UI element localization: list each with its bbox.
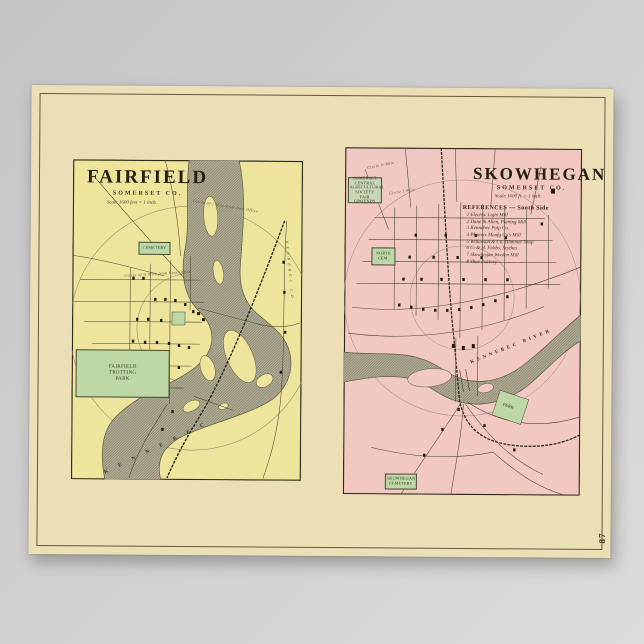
skowhegan-cemetery-label: SKOWHEGAN CEMETERY <box>387 477 415 486</box>
fairfield-county: SOMERSET CO. <box>113 191 182 198</box>
skowhegan-title: SKOWHEGAN <box>473 165 606 184</box>
atlas-poster: FAIRFIELD SOMERSET CO. Scale 1600 feet =… <box>28 85 613 558</box>
fairfield-scale: Scale 1600 feet = 1 inch. <box>107 201 157 207</box>
references-title: REFERENCES — South Side <box>463 205 549 212</box>
cemetery-box: CEMETERY <box>138 242 170 255</box>
skowhegan-county: SOMERSET CO. <box>497 185 566 192</box>
village-park-square <box>172 312 185 325</box>
fair-grounds-box: SOMERSET CENTRAL AGRICULTURAL SOCIETY FA… <box>348 177 382 203</box>
fair-grounds-label: SOMERSET CENTRAL AGRICULTURAL SOCIETY FA… <box>350 176 380 204</box>
trotting-park-box: FAIRFIELD TROTTING PARK <box>75 349 169 398</box>
north-cemetery-box: NORTH CEM. <box>371 247 395 265</box>
page-number: 87 <box>597 532 607 543</box>
fairfield-map-panel: FAIRFIELD SOMERSET CO. Scale 1600 feet =… <box>71 159 303 481</box>
reference-item: 8 Shoe Factory <box>466 260 533 267</box>
skowhegan-cemetery-box: SKOWHEGAN CEMETERY <box>385 473 417 489</box>
skowhegan-map-panel: SKOWHEGAN SOMERSET CO. Scale 1600 ft. = … <box>343 147 582 496</box>
fairfield-title: FAIRFIELD <box>87 167 208 188</box>
north-cemetery-label: NORTH CEM. <box>373 252 393 261</box>
references-list: 1 Electric Light Mill 2 Dane & Allen, Pl… <box>466 213 533 267</box>
cemetery-label: CEMETERY <box>143 246 167 251</box>
skowhegan-scale: Scale 1600 ft. = 1 inch. <box>495 194 542 200</box>
trotting-park-label: FAIRFIELD TROTTING PARK <box>103 365 143 383</box>
